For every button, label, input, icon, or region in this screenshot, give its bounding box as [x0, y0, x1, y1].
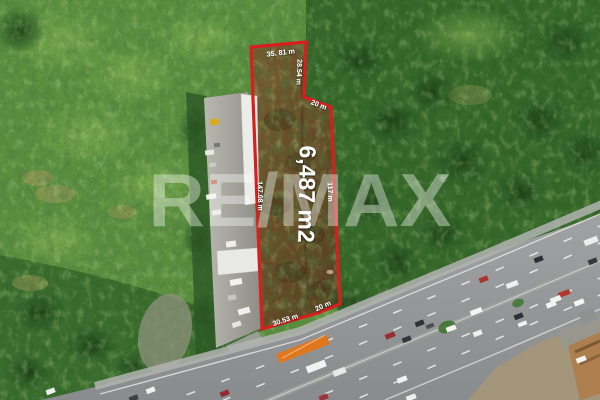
warehouse-roof-lower: [217, 248, 258, 275]
aerial-photo: 35. 81 m 28.54 m 20 m 117 m 147.08 m 6,4…: [0, 0, 600, 400]
equipment: [214, 143, 220, 148]
watermark: RE/MAX ®: [149, 158, 452, 242]
registered-mark: ®: [440, 174, 447, 184]
aerial-photo-listing: 35. 81 m 28.54 m 20 m 117 m 147.08 m 6,4…: [0, 0, 600, 400]
measure-upper-right: 28.54 m: [295, 59, 303, 85]
excavator: [210, 118, 220, 125]
watermark-brand: RE/MAX: [149, 158, 452, 242]
